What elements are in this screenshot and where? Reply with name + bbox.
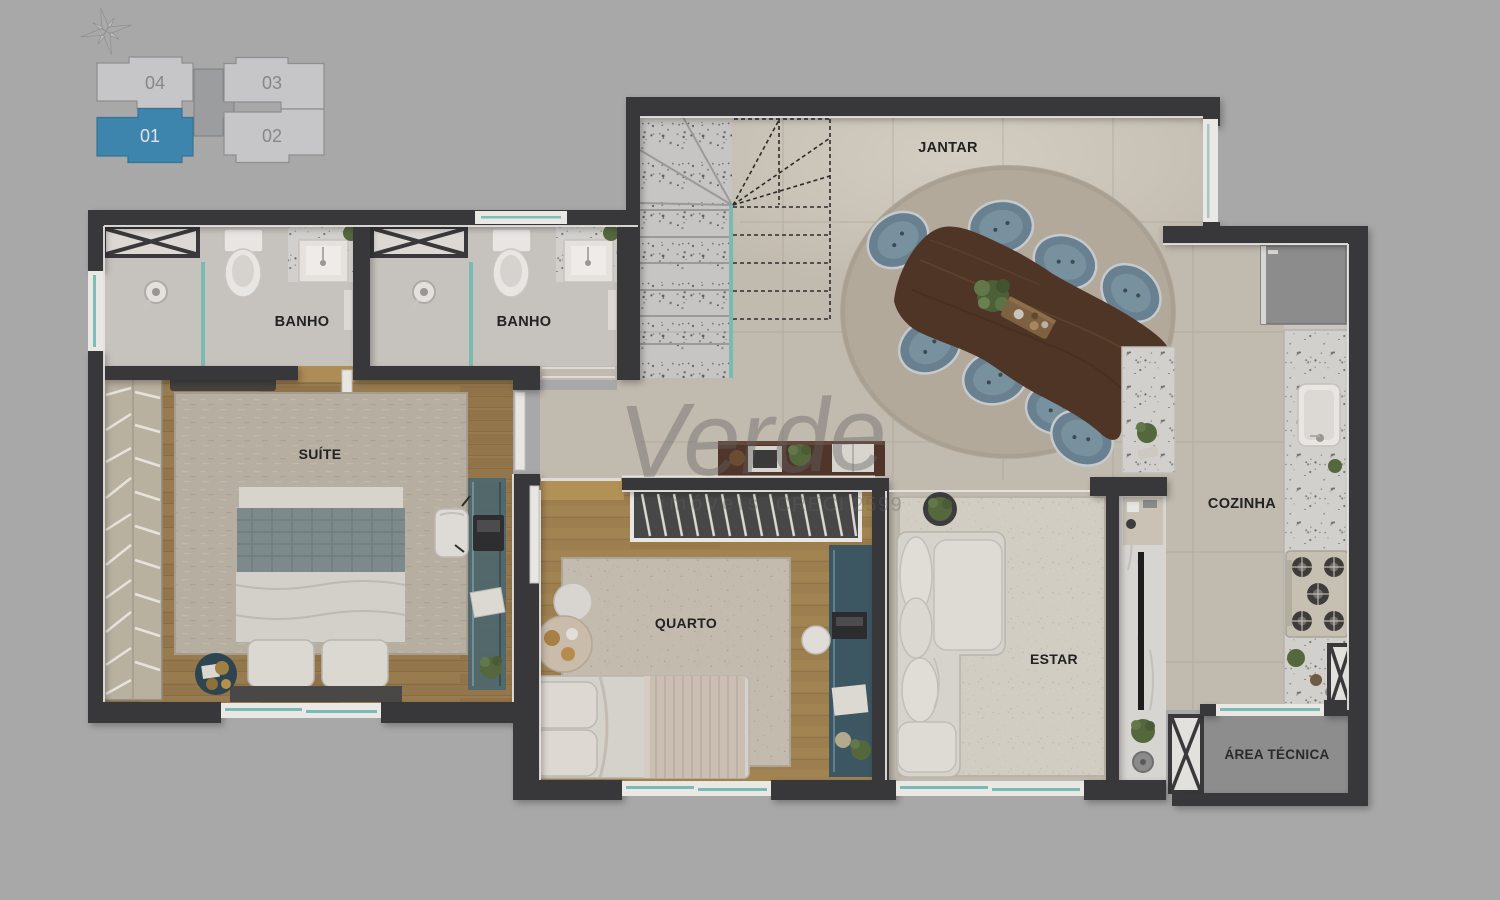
- svg-text:imóveis: imóveis: [660, 493, 763, 515]
- svg-text:Verde: Verde: [617, 376, 889, 501]
- svg-text:BANHO: BANHO: [275, 314, 330, 330]
- svg-text:04: 04: [145, 73, 165, 93]
- svg-text:SUÍTE: SUÍTE: [299, 446, 342, 462]
- svg-text:ÁREA TÉCNICA: ÁREA TÉCNICA: [1224, 747, 1329, 762]
- svg-text:JANTAR: JANTAR: [918, 140, 978, 156]
- svg-text:CRECI 2599: CRECI 2599: [776, 494, 903, 516]
- svg-text:QUARTO: QUARTO: [655, 615, 717, 631]
- svg-text:01: 01: [140, 126, 160, 146]
- svg-text:BANHO: BANHO: [497, 314, 552, 330]
- svg-text:ESTAR: ESTAR: [1030, 651, 1078, 667]
- svg-text:02: 02: [262, 126, 282, 146]
- svg-text:03: 03: [262, 73, 282, 93]
- svg-text:COZINHA: COZINHA: [1208, 496, 1276, 512]
